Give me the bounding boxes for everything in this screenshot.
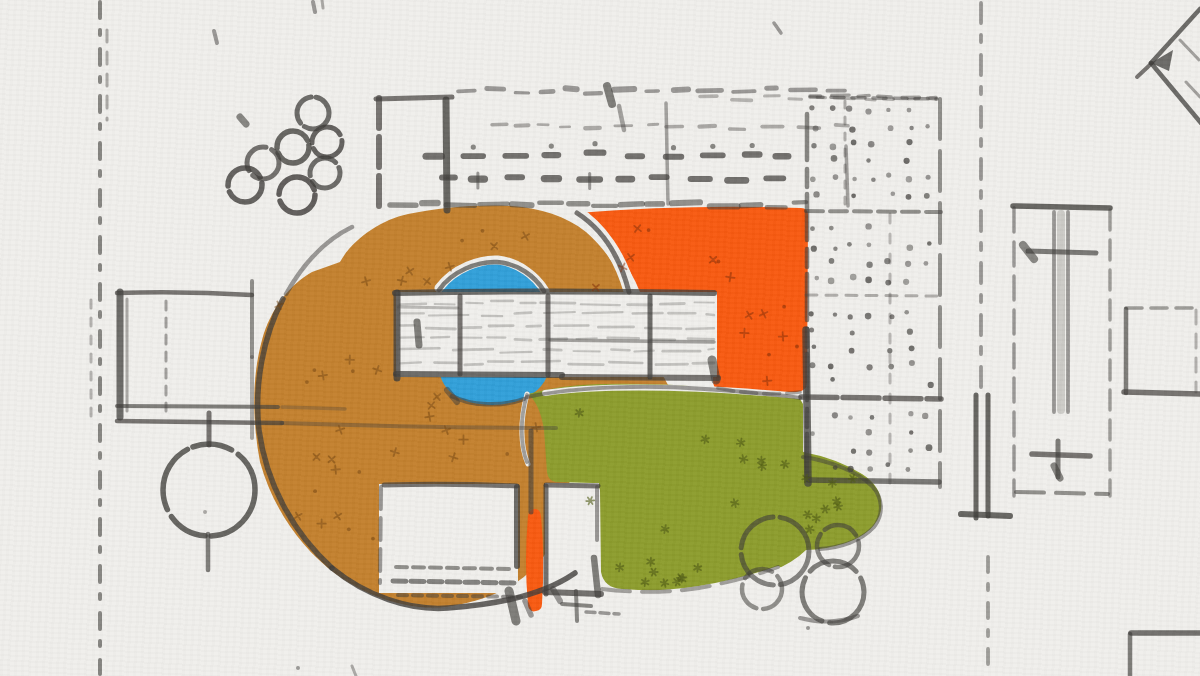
grid-dot: [928, 382, 934, 388]
north-arrow: [1137, 9, 1200, 123]
grid-dot: [809, 105, 814, 110]
stray-vertical: [846, 146, 848, 206]
hatch-dash: [487, 89, 504, 90]
grid-dot: [905, 261, 911, 267]
right-tall-structure: [1013, 206, 1110, 496]
top-rect-top: [376, 97, 452, 99]
grid-dot: [908, 448, 913, 453]
grid-dot: [908, 411, 913, 416]
tree-symbol: [163, 413, 255, 570]
hatch-dash: [541, 91, 553, 92]
grid-dot: [812, 344, 817, 349]
hatch-dash: [581, 304, 620, 305]
bottom-right-structure: [1130, 633, 1200, 676]
hatch-dash: [569, 364, 604, 365]
grid-dot: [813, 125, 819, 131]
grid-dot: [829, 226, 834, 231]
hatch-dash: [609, 362, 642, 363]
tall-crossbar-blob: [1023, 245, 1034, 259]
hatch-dash: [426, 328, 455, 329]
tree-circle: [312, 127, 342, 157]
grid-left-border-heavy: [806, 330, 808, 483]
grid-dot: [886, 173, 891, 178]
speck-dot: [647, 228, 651, 232]
speck-dot: [357, 470, 361, 474]
tall-crossbar: [1028, 251, 1096, 253]
grid-dot: [909, 345, 915, 351]
cross-dashes: [586, 612, 619, 614]
grid-dot: [865, 108, 871, 114]
grid-dot: [890, 314, 895, 319]
grid-dot: [871, 178, 876, 183]
right-small-structure: [1124, 308, 1200, 394]
arrow-tick: [1137, 63, 1152, 77]
stray-vertical: [666, 103, 668, 204]
hatch-dash: [516, 125, 529, 126]
grid-dot: [907, 329, 913, 335]
hatch-dash: [698, 90, 722, 91]
grid-dot: [809, 327, 814, 332]
grid-dot: [810, 176, 816, 182]
hatch-dash: [789, 99, 802, 100]
hatch-dot: [549, 144, 554, 149]
grid-dot: [906, 176, 912, 182]
strip-bottom-border: [396, 374, 562, 375]
grid-dot: [909, 430, 913, 434]
hatch-dash: [566, 88, 577, 89]
grid-dot: [926, 175, 931, 180]
grid-dot: [811, 246, 817, 252]
hatch-dot: [750, 143, 755, 148]
hatch-dash: [400, 362, 421, 363]
hatch-dash: [686, 328, 714, 329]
grid-dot: [884, 258, 890, 264]
grid-dot: [833, 312, 837, 316]
hatch-dash: [479, 204, 507, 205]
hatch-dash: [429, 315, 469, 316]
speck-dot: [782, 305, 786, 309]
hatch-dash: [836, 125, 849, 126]
grid-dot: [848, 314, 853, 319]
hatch-dash: [544, 312, 575, 313]
hatch-dash: [515, 313, 531, 314]
grid-dot: [846, 105, 852, 111]
grid-dot: [925, 124, 929, 128]
grid-dot: [851, 193, 856, 198]
speck-dot: [767, 353, 771, 357]
grid-dot: [909, 126, 913, 130]
hatch-dash: [453, 349, 493, 350]
right-boundary-line: [961, 3, 1010, 676]
hatch-dash: [708, 349, 714, 350]
tree-circles: [228, 97, 342, 213]
grid-dot: [891, 191, 896, 196]
grid-dot: [831, 155, 838, 162]
arrow-hatch: [1180, 40, 1199, 60]
site-plan-sketch: [0, 0, 1200, 676]
tall-lower-cross-h: [1032, 454, 1090, 456]
tree-circle: [277, 131, 309, 163]
grid-dot: [924, 261, 929, 266]
hatch-dash: [674, 89, 688, 90]
grid-dot: [924, 193, 930, 199]
hatch-dash: [465, 364, 483, 365]
grid-dot: [927, 241, 932, 246]
grid-dot: [810, 431, 815, 436]
grid-dot: [828, 364, 834, 370]
grid-dot: [830, 144, 837, 151]
grid-dot: [833, 247, 837, 251]
strip-top-border: [395, 292, 714, 294]
grid-dot: [815, 276, 820, 281]
speck-dot: [313, 489, 317, 493]
grid-dot: [850, 331, 855, 336]
speck-dot: [795, 345, 799, 349]
hatch-dash: [512, 204, 532, 205]
hatch-dash: [400, 304, 426, 305]
grid-dot: [888, 364, 894, 370]
grid-dot: [867, 364, 873, 370]
dotted-grid-structure: [801, 97, 941, 487]
grid-dots: [809, 105, 934, 472]
stray-mark: [313, 2, 315, 12]
hatch-dot: [671, 145, 676, 150]
grid-dot: [906, 194, 912, 200]
grid-dot: [828, 278, 835, 285]
hatch-dash: [707, 314, 715, 315]
hatch-dash: [733, 91, 755, 92]
tree-circle: [297, 97, 329, 129]
hatch-dash: [620, 204, 642, 205]
hatch-dash: [732, 100, 752, 101]
hatch-dash: [515, 339, 531, 340]
top-rect-right: [446, 100, 447, 210]
sketch-page: [0, 0, 1200, 676]
grid-dot: [909, 360, 915, 366]
grid-dot: [904, 310, 909, 315]
speck-dot: [347, 527, 351, 531]
grid-dot: [852, 177, 857, 182]
grid-dot: [833, 174, 839, 180]
strip-bottom-border: [562, 377, 718, 378]
speck-dot: [313, 368, 317, 372]
tree-circle: [279, 177, 315, 213]
grid-dot: [866, 158, 870, 162]
grid-dot: [885, 462, 890, 467]
bldg-top: [384, 484, 517, 486]
bush-circle: [802, 561, 864, 623]
grid-dot: [926, 444, 933, 451]
speck-dot: [460, 239, 464, 243]
hatch-dash: [688, 339, 714, 340]
stray-mark: [352, 666, 356, 676]
grid-dot: [851, 449, 856, 454]
strip-mark: [417, 322, 419, 345]
small-bldg-corner: [594, 558, 598, 595]
grid-dot: [847, 242, 852, 247]
grid-dot: [850, 274, 857, 281]
tall-bottom: [1016, 492, 1108, 494]
grid-dot: [906, 467, 911, 472]
hatch-dot: [471, 145, 476, 150]
hatch-dot: [592, 141, 597, 146]
stray-mark: [322, 0, 323, 8]
bldg-steps: [398, 595, 521, 597]
wall-end-bar: [961, 514, 1010, 516]
grid-dot: [922, 413, 928, 419]
grid-dot: [849, 126, 855, 132]
grid-divider: [806, 211, 941, 212]
hatch-dash: [431, 337, 449, 338]
hatch-dash: [656, 364, 688, 365]
grid-dot: [865, 223, 871, 229]
hatch-dash: [614, 89, 634, 90]
grid-dot: [809, 362, 815, 368]
hatch-dash: [577, 338, 597, 339]
strip-midline: [398, 307, 458, 308]
grid-dot: [907, 108, 912, 113]
grid-dot: [887, 348, 892, 353]
grid-dot: [865, 277, 872, 284]
hatch-dot: [710, 144, 715, 149]
bldg-left: [380, 487, 381, 583]
tree-circle: [310, 158, 340, 188]
grid-dot: [811, 143, 816, 148]
hatch-dash: [672, 202, 700, 203]
hatch-dash: [544, 350, 562, 351]
hatch-dash: [400, 348, 440, 349]
boundary-dashed-line-left: [91, 2, 107, 674]
strip-midline: [550, 340, 714, 342]
stray-mark: [214, 31, 217, 43]
hatch-dash: [633, 313, 663, 314]
stray-mark: [774, 23, 781, 33]
hatch-dash: [458, 91, 475, 92]
tree-symbol-circle: [163, 444, 255, 536]
annex-line-faint: [282, 407, 345, 409]
cross-v: [576, 591, 577, 621]
bush-underline: [800, 616, 858, 622]
grid-dot: [832, 412, 838, 418]
tree-symbol-dot: [203, 510, 207, 514]
grid-dot: [904, 158, 910, 164]
hatch-dash: [742, 205, 761, 206]
grid-dot: [865, 313, 872, 320]
grid-top-border: [810, 97, 937, 99]
grid-dot: [848, 415, 853, 420]
stray-mark: [607, 86, 612, 104]
hatch-dash: [700, 126, 715, 127]
grid-dot: [810, 226, 815, 231]
hatch-dash: [540, 339, 567, 340]
hatch-dash: [585, 93, 601, 94]
hatch-dash: [611, 350, 629, 351]
grid-divider-heavy: [801, 397, 941, 399]
grid-dot: [870, 415, 875, 420]
speck-dot: [717, 260, 721, 264]
grid-dot: [888, 125, 894, 131]
grid-dot: [867, 242, 872, 247]
tree-circle: [228, 168, 262, 202]
grid-dot: [830, 377, 835, 382]
speck-dot: [481, 229, 485, 233]
hatch-dash: [446, 205, 475, 206]
stray-dot: [296, 666, 300, 670]
stray-dot: [806, 626, 810, 630]
trellis-hatch-band: [390, 88, 936, 207]
tree-dot: [240, 117, 246, 124]
grid-dot: [867, 466, 873, 472]
grid-dot: [809, 311, 814, 316]
small-bottom: [1124, 392, 1200, 394]
lower-building-paper: [379, 484, 518, 593]
grid-dot: [866, 429, 872, 435]
grid-dot: [851, 140, 857, 146]
hatch-dash: [660, 304, 684, 305]
hatch-dash: [466, 303, 483, 304]
annex-top: [117, 292, 252, 295]
grid-dot: [849, 348, 855, 354]
grid-dot: [866, 450, 872, 456]
grid-dot: [829, 258, 835, 264]
arrow-hatch: [1186, 82, 1200, 97]
hatch-dash: [500, 352, 531, 353]
grid-dot: [906, 139, 912, 145]
hatch-dash: [492, 124, 507, 125]
speck-dot: [351, 369, 355, 373]
speck-dot: [305, 380, 309, 384]
grid-dot: [886, 108, 890, 112]
grid-dot: [903, 279, 909, 285]
grid-dot: [830, 105, 836, 111]
grid-dot: [868, 141, 875, 148]
arrow-arm: [1151, 63, 1200, 123]
grid-dot: [866, 262, 872, 268]
hatch-dash: [794, 202, 806, 203]
grid-dot: [907, 244, 914, 251]
hatch-dash: [649, 124, 658, 125]
small-bldg-top: [546, 485, 598, 486]
speck-dot: [505, 452, 509, 456]
grid-dot: [885, 280, 891, 286]
grid-divider: [806, 295, 941, 296]
hatch-dash: [583, 312, 623, 313]
grid-dot: [813, 191, 819, 197]
tree-circle: [247, 147, 279, 179]
speck-dot: [371, 537, 375, 541]
hatch-dash: [608, 338, 639, 339]
hatch-dash: [522, 361, 560, 362]
tall-top: [1013, 206, 1110, 208]
hatch-dash: [635, 351, 654, 352]
